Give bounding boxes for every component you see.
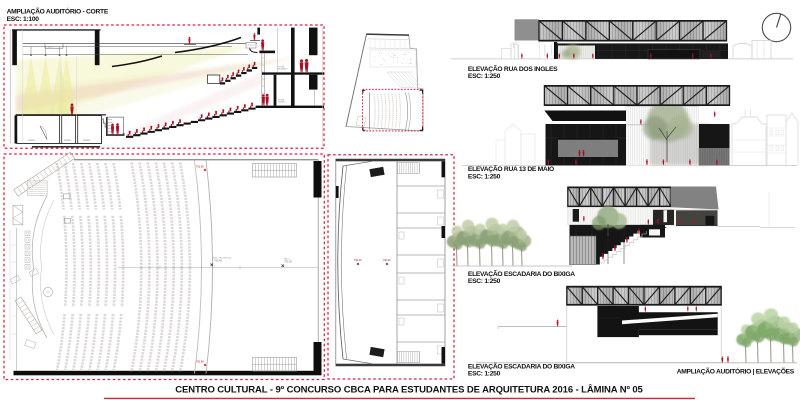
svg-text:ELEVAÇÃO ESCADARIA DO BIXIGA: ELEVAÇÃO ESCADARIA DO BIXIGA <box>468 362 575 371</box>
svg-text:ELEVAÇÃO ESCADARIA DO BIXIGA: ELEVAÇÃO ESCADARIA DO BIXIGA <box>468 269 575 278</box>
svg-text:AMPLIAÇÃO AUDITÓRIO - CORTE: AMPLIAÇÃO AUDITÓRIO - CORTE <box>7 7 109 16</box>
svg-text:791.80: 791.80 <box>196 166 204 169</box>
svg-text:ESC: 1:250: ESC: 1:250 <box>468 278 501 285</box>
svg-text:ESC: 1:250: ESC: 1:250 <box>468 73 501 80</box>
svg-text:ESC: 1:100: ESC: 1:100 <box>7 16 40 23</box>
svg-text:790.40: 790.40 <box>214 259 222 263</box>
svg-text:791.80: 791.80 <box>196 361 204 364</box>
svg-text:790.40: 790.40 <box>354 259 362 262</box>
svg-text:ELEVAÇÃO RUA DOS INGLES: ELEVAÇÃO RUA DOS INGLES <box>468 64 558 73</box>
svg-text:ESC: 1:250: ESC: 1:250 <box>468 371 501 378</box>
svg-text:MEZANINO: MEZANINO <box>278 68 288 71</box>
svg-text:793.00: 793.00 <box>284 260 292 264</box>
svg-text:TERREO: TERREO <box>278 102 286 104</box>
svg-text:ELEVAÇÃO RUA 13 DE MAIO: ELEVAÇÃO RUA 13 DE MAIO <box>468 164 554 173</box>
svg-text:ESC: 1:250: ESC: 1:250 <box>468 173 501 180</box>
svg-text:AMPLIAÇÃO AUDITÓRIO | ELEVAÇÕE: AMPLIAÇÃO AUDITÓRIO | ELEVAÇÕES <box>677 367 795 376</box>
svg-text:CENTRO CULTURAL - 9º CONCURSO: CENTRO CULTURAL - 9º CONCURSO CBCA PARA … <box>175 383 643 395</box>
svg-text:MEZ.: MEZ. <box>48 47 53 49</box>
svg-text:790.40: 790.40 <box>383 259 391 262</box>
